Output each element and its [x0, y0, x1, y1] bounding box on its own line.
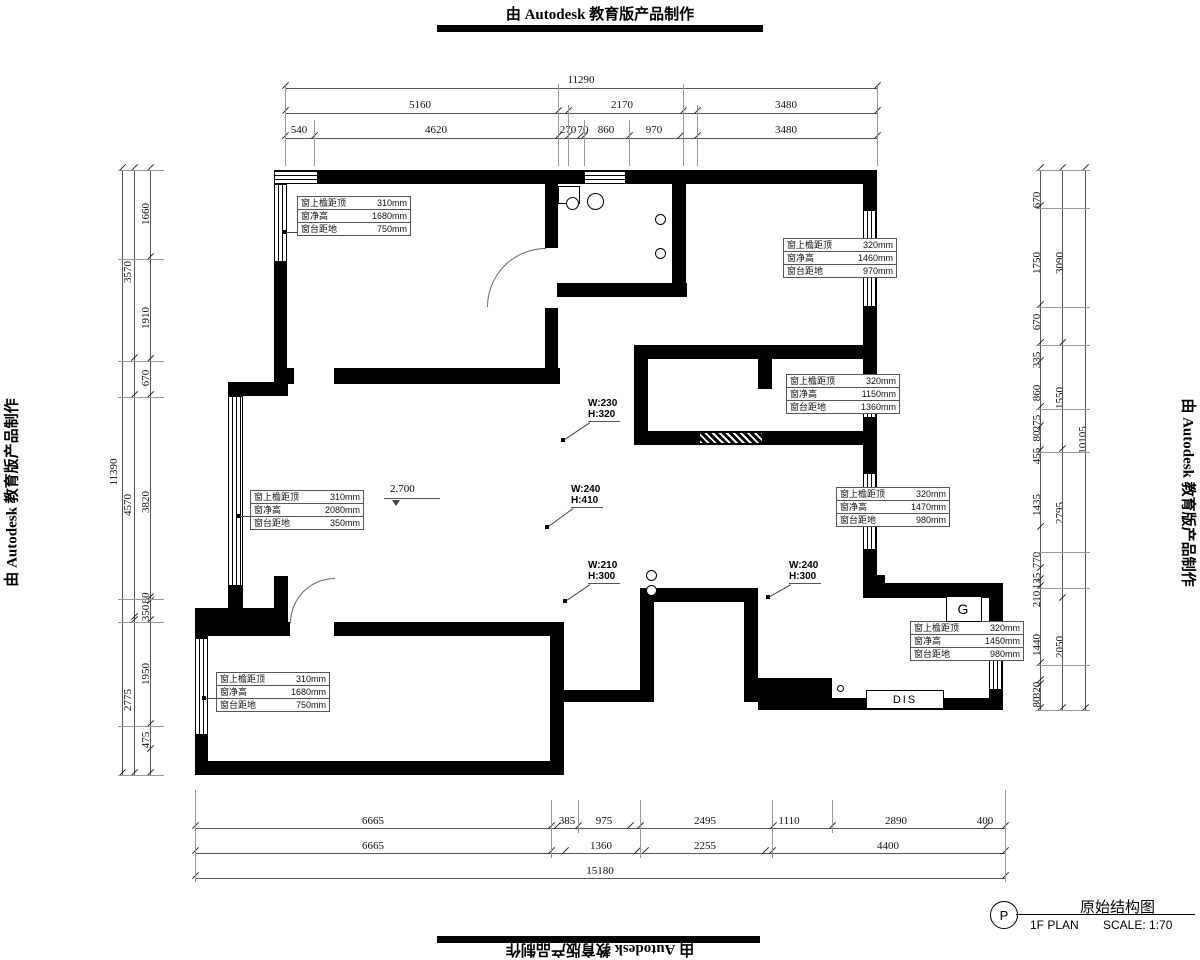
window-tag-row: 窗净高1680mm	[297, 209, 411, 223]
plan-symbol: P	[1000, 908, 1009, 923]
dimension-line	[195, 853, 1005, 854]
window-tag-text: 窗净高	[301, 210, 328, 222]
plan-label-text: 1F PLAN	[1030, 918, 1079, 932]
wall	[758, 678, 832, 710]
window-tag-text: 320mm	[863, 239, 893, 251]
window-tag-row: 窗净高1450mm	[910, 634, 1024, 648]
wall	[863, 184, 877, 210]
window-tag: 窗上檐距顶310mm窗净高2080mm窗台距地350mm	[250, 490, 364, 530]
wall	[545, 170, 558, 248]
window-tag: 窗上檐距顶320mm窗净高1150mm窗台距地1360mm	[786, 374, 900, 414]
opening-leader-dot	[561, 438, 565, 442]
opening-size-label: W:240H:410	[571, 484, 603, 508]
dim-label: 2255	[694, 840, 716, 852]
window-tag-row: 窗净高1460mm	[783, 251, 897, 265]
extension-line	[558, 84, 559, 166]
extension-line	[314, 120, 315, 166]
door-arc	[487, 248, 546, 307]
dim-label: 3570	[122, 261, 134, 283]
tag-leader-dot	[282, 230, 286, 234]
extension-line	[1036, 307, 1090, 308]
opening-leader-dot	[545, 525, 549, 529]
opening-leader	[565, 584, 591, 602]
extension-line	[118, 259, 164, 260]
window-tag-text: 窗台距地	[787, 265, 823, 277]
opening-leader-dot	[563, 599, 567, 603]
dim-label: 11390	[108, 458, 120, 485]
dim-label: 975	[596, 815, 613, 827]
dim-label: 1435	[1031, 494, 1043, 516]
wall	[634, 431, 648, 445]
window-tag: 窗上檐距顶320mm窗净高1460mm窗台距地970mm	[783, 238, 897, 278]
extension-line	[683, 84, 684, 166]
tag-leader-dot	[202, 696, 206, 700]
extension-line	[1036, 409, 1090, 410]
dis-box: DIS	[866, 690, 944, 709]
dimension-line	[122, 170, 123, 775]
window-tag-text: 窗净高	[254, 504, 281, 516]
dim-label: 10105	[1077, 426, 1089, 454]
wall	[274, 260, 287, 384]
window-tag-text: 1150mm	[862, 388, 896, 400]
dim-label: 3480	[775, 124, 797, 136]
extension-line	[195, 790, 196, 882]
wall	[640, 588, 654, 702]
wall	[634, 345, 877, 359]
dim-label: 1550	[1054, 387, 1066, 409]
dim-label: 455	[1031, 448, 1043, 465]
dim-label: 15180	[586, 865, 614, 877]
dim-label: 6665	[362, 815, 384, 827]
window-tag-text: 320mm	[990, 622, 1020, 634]
opening-size-text: H:300	[789, 571, 818, 582]
window-tag-text: 窗台距地	[840, 514, 876, 526]
window-tag-text: 320mm	[916, 488, 946, 500]
gas-meter-label: G	[958, 601, 971, 617]
window-tag-text: 750mm	[296, 699, 326, 711]
dim-label: 385	[559, 815, 576, 827]
opening-size-text: H:320	[588, 409, 617, 420]
opening-leader	[547, 508, 574, 528]
extension-line	[568, 105, 569, 166]
gas-meter-box: G	[946, 596, 982, 622]
fixture-circle	[655, 214, 666, 225]
window-tag-text: 980mm	[990, 648, 1020, 660]
dim-label: 4570	[122, 494, 134, 516]
window-tag-text: 窗上檐距顶	[840, 488, 885, 500]
floor-plan-sheet: 由 Autodesk 教育版产品制作 由 Autodesk 教育版产品制作 由 …	[0, 0, 1200, 960]
wall	[550, 622, 564, 775]
extension-line	[832, 800, 833, 833]
window-tag-text: 1360mm	[861, 401, 896, 413]
window-tag-row: 窗上檐距顶320mm	[836, 487, 950, 501]
wall	[557, 283, 687, 297]
window-tag-text: 窗台距地	[914, 648, 950, 660]
window-tag-row: 窗净高1680mm	[216, 685, 330, 699]
extension-line	[1036, 345, 1090, 346]
plan-label: 1F PLAN	[1030, 918, 1079, 932]
dim-label: 3480	[775, 99, 797, 111]
window-tag-text: 320mm	[866, 375, 896, 387]
extension-line	[584, 120, 585, 166]
wall	[228, 586, 243, 622]
window-tag-row: 窗台距地1360mm	[786, 400, 900, 414]
window-tag-row: 窗台距地970mm	[783, 264, 897, 278]
fixture-circle	[837, 685, 844, 692]
window	[274, 184, 287, 262]
opening-size-text: W:240	[789, 560, 818, 571]
opening-size-label: W:230H:320	[588, 398, 620, 422]
window-tag-text: 310mm	[330, 491, 360, 503]
dimension-line	[285, 88, 877, 89]
dim-label: 11290	[567, 74, 594, 86]
wall	[228, 382, 288, 396]
opening-leader	[768, 584, 791, 598]
window-tag: 窗上檐距顶320mm窗净高1470mm窗台距地980mm	[836, 487, 950, 527]
dim-label: 80	[1031, 431, 1043, 442]
extension-line	[640, 800, 641, 858]
wall	[758, 359, 772, 389]
window-tag-text: 1460mm	[858, 252, 893, 264]
window-tag-text: 窗上檐距顶	[220, 673, 265, 685]
window-tag-row: 窗上檐距顶320mm	[783, 238, 897, 252]
window-tag-text: 310mm	[296, 673, 326, 685]
dim-label: 5160	[409, 99, 431, 111]
opening-size-text: H:300	[588, 571, 617, 582]
extension-line	[118, 170, 164, 171]
dimension-line	[285, 113, 877, 114]
dimension-line	[195, 828, 1005, 829]
wall	[195, 622, 290, 636]
window-tag: 窗上檐距顶310mm窗净高1680mm窗台距地750mm	[216, 672, 330, 712]
window-tag-text: 1680mm	[372, 210, 407, 222]
window-tag-text: 1470mm	[911, 501, 946, 513]
extension-line	[1036, 710, 1090, 711]
window-tag-text: 970mm	[863, 265, 893, 277]
dim-label: 2890	[885, 815, 907, 827]
dim-label: 1110	[778, 815, 799, 827]
window	[195, 638, 208, 735]
extension-line	[1036, 588, 1090, 589]
dimension-line	[1040, 170, 1041, 710]
opening-leader	[563, 422, 591, 441]
window-tag-row: 窗上檐距顶310mm	[216, 672, 330, 686]
tag-leader-dot	[236, 514, 240, 518]
wall	[744, 588, 758, 702]
window-tag-row: 窗净高1470mm	[836, 500, 950, 514]
window-tag-text: 2080mm	[325, 504, 360, 516]
window	[228, 396, 243, 586]
window-tag-text: 窗台距地	[220, 699, 256, 711]
window-tag-text: 窗净高	[914, 635, 941, 647]
dim-label: 670	[1031, 192, 1043, 209]
opening-size-label: W:240H:300	[789, 560, 821, 584]
dim-label: 860	[1031, 385, 1043, 402]
level-mark-value: 2.700	[390, 483, 415, 495]
wall	[195, 761, 564, 775]
extension-line	[1036, 665, 1090, 666]
wall	[318, 170, 558, 184]
dimension-line	[134, 170, 135, 775]
window-tag-text: 窗净高	[787, 252, 814, 264]
dim-label: 3090	[1054, 252, 1066, 274]
opening-size-text: W:230	[588, 398, 617, 409]
window-tag-row: 窗净高2080mm	[250, 503, 364, 517]
dimension-line	[195, 878, 1005, 879]
wall	[863, 583, 1003, 598]
floor-plan: G DIS 2.700 1129051602170348054046202707…	[0, 0, 1200, 960]
window-tag-row: 窗台距地980mm	[836, 513, 950, 527]
extension-line	[551, 800, 552, 858]
window-tag-row: 窗台距地980mm	[910, 647, 1024, 661]
window	[274, 170, 318, 184]
wall	[648, 431, 877, 445]
level-mark-triangle	[392, 500, 400, 506]
wall	[334, 622, 557, 636]
opening-size-text: W:240	[571, 484, 600, 495]
wall	[545, 308, 558, 384]
window-tag-text: 980mm	[916, 514, 946, 526]
window-tag-text: 310mm	[377, 197, 407, 209]
window-tag-text: 窗上檐距顶	[787, 239, 832, 251]
wall	[686, 170, 877, 184]
window-tag-row: 窗上檐距顶310mm	[297, 196, 411, 210]
window-tag-row: 窗上檐距顶320mm	[786, 374, 900, 388]
window-tag: 窗上檐距顶320mm窗净高1450mm窗台距地980mm	[910, 621, 1024, 661]
dim-label: 2170	[611, 99, 633, 111]
level-mark: 2.700	[390, 483, 415, 495]
dim-label: 2050	[1054, 636, 1066, 658]
dimension-line	[1085, 170, 1086, 710]
wall	[863, 359, 877, 374]
dim-label: 4400	[877, 840, 899, 852]
extension-line	[118, 775, 164, 776]
fixture-circle	[587, 193, 604, 210]
window-tag-text: 750mm	[377, 223, 407, 235]
extension-line	[1036, 552, 1090, 553]
extension-line	[772, 800, 773, 858]
window-tag-text: 窗上檐距顶	[301, 197, 346, 209]
dim-label: 2775	[122, 689, 134, 711]
dim-label: 860	[598, 124, 615, 136]
extension-line	[118, 726, 164, 727]
window-tag-text: 1450mm	[985, 635, 1020, 647]
opening-leader-dot	[766, 595, 770, 599]
extension-line	[118, 397, 164, 398]
window-tag-row: 窗上檐距顶310mm	[250, 490, 364, 504]
wall	[863, 445, 877, 473]
fixture-circle	[646, 585, 657, 596]
extension-line	[877, 84, 878, 166]
dimension-line	[1062, 170, 1063, 710]
opening-size-text: W:210	[588, 560, 617, 571]
scale-label: SCALE: 1:70	[1103, 918, 1172, 932]
window-tag-row: 窗台距地750mm	[297, 222, 411, 236]
level-mark-line	[384, 498, 440, 499]
window-tag-text: 窗净高	[220, 686, 247, 698]
extension-line	[285, 84, 286, 166]
wall	[564, 690, 640, 702]
dimension-line	[150, 170, 151, 775]
wall	[626, 170, 686, 184]
window-tag-text: 窗台距地	[790, 401, 826, 413]
window-tag-row: 窗台距地350mm	[250, 516, 364, 530]
window-tag-row: 窗台距地750mm	[216, 698, 330, 712]
wall	[334, 368, 560, 384]
fixture-circle	[566, 197, 579, 210]
fixture-circle	[646, 570, 657, 581]
scale-label-text: SCALE: 1:70	[1103, 918, 1172, 932]
wall	[195, 608, 208, 638]
window-tag-text: 窗上檐距顶	[254, 491, 299, 503]
wall	[654, 588, 744, 602]
window-tag-text: 窗台距地	[254, 517, 290, 529]
door-arc	[290, 578, 335, 623]
extension-line	[1036, 170, 1090, 171]
extension-line	[629, 120, 630, 166]
opening-size-text: H:410	[571, 495, 600, 506]
extension-line	[118, 361, 164, 362]
window-tag: 窗上檐距顶310mm窗净高1680mm窗台距地750mm	[297, 196, 411, 236]
window-tag-text: 窗净高	[840, 501, 867, 513]
window-tag-text: 350mm	[330, 517, 360, 529]
extension-line	[1036, 452, 1090, 453]
wall	[634, 359, 648, 431]
dim-label: 670	[1031, 314, 1043, 331]
title-underline	[1016, 914, 1195, 915]
window-tag-text: 窗台距地	[301, 223, 337, 235]
dis-label: DIS	[893, 694, 917, 706]
window-tag-text: 窗净高	[790, 388, 817, 400]
dim-label: 2495	[694, 815, 716, 827]
wall	[274, 576, 288, 622]
extension-line	[1036, 208, 1090, 209]
fixture-circle	[655, 248, 666, 259]
dim-label: 970	[646, 124, 663, 136]
window-tag-row: 窗净高1150mm	[786, 387, 900, 401]
dim-label: 2795	[1054, 502, 1066, 524]
unfinished-wall-hatch	[700, 433, 762, 443]
extension-line	[578, 800, 579, 833]
window-tag-text: 窗上檐距顶	[790, 375, 835, 387]
extension-line	[1005, 790, 1006, 882]
window-tag-text: 1680mm	[291, 686, 326, 698]
wall	[863, 575, 885, 583]
dim-label: 4620	[425, 124, 447, 136]
extension-line	[118, 599, 164, 600]
wall	[672, 184, 686, 297]
dim-label: 540	[291, 124, 308, 136]
dim-label: 1750	[1031, 252, 1043, 274]
dim-label: 210	[1031, 591, 1043, 608]
extension-line	[697, 105, 698, 166]
window-tag-row: 窗上檐距顶320mm	[910, 621, 1024, 635]
dim-label: 6665	[362, 840, 384, 852]
dim-label: 1360	[590, 840, 612, 852]
dim-label: 1440	[1031, 634, 1043, 656]
window	[584, 170, 626, 184]
wall	[558, 170, 586, 184]
extension-line	[118, 622, 164, 623]
opening-size-label: W:210H:300	[588, 560, 620, 584]
window-tag-text: 窗上檐距顶	[914, 622, 959, 634]
plan-symbol-circle: P	[990, 901, 1018, 929]
